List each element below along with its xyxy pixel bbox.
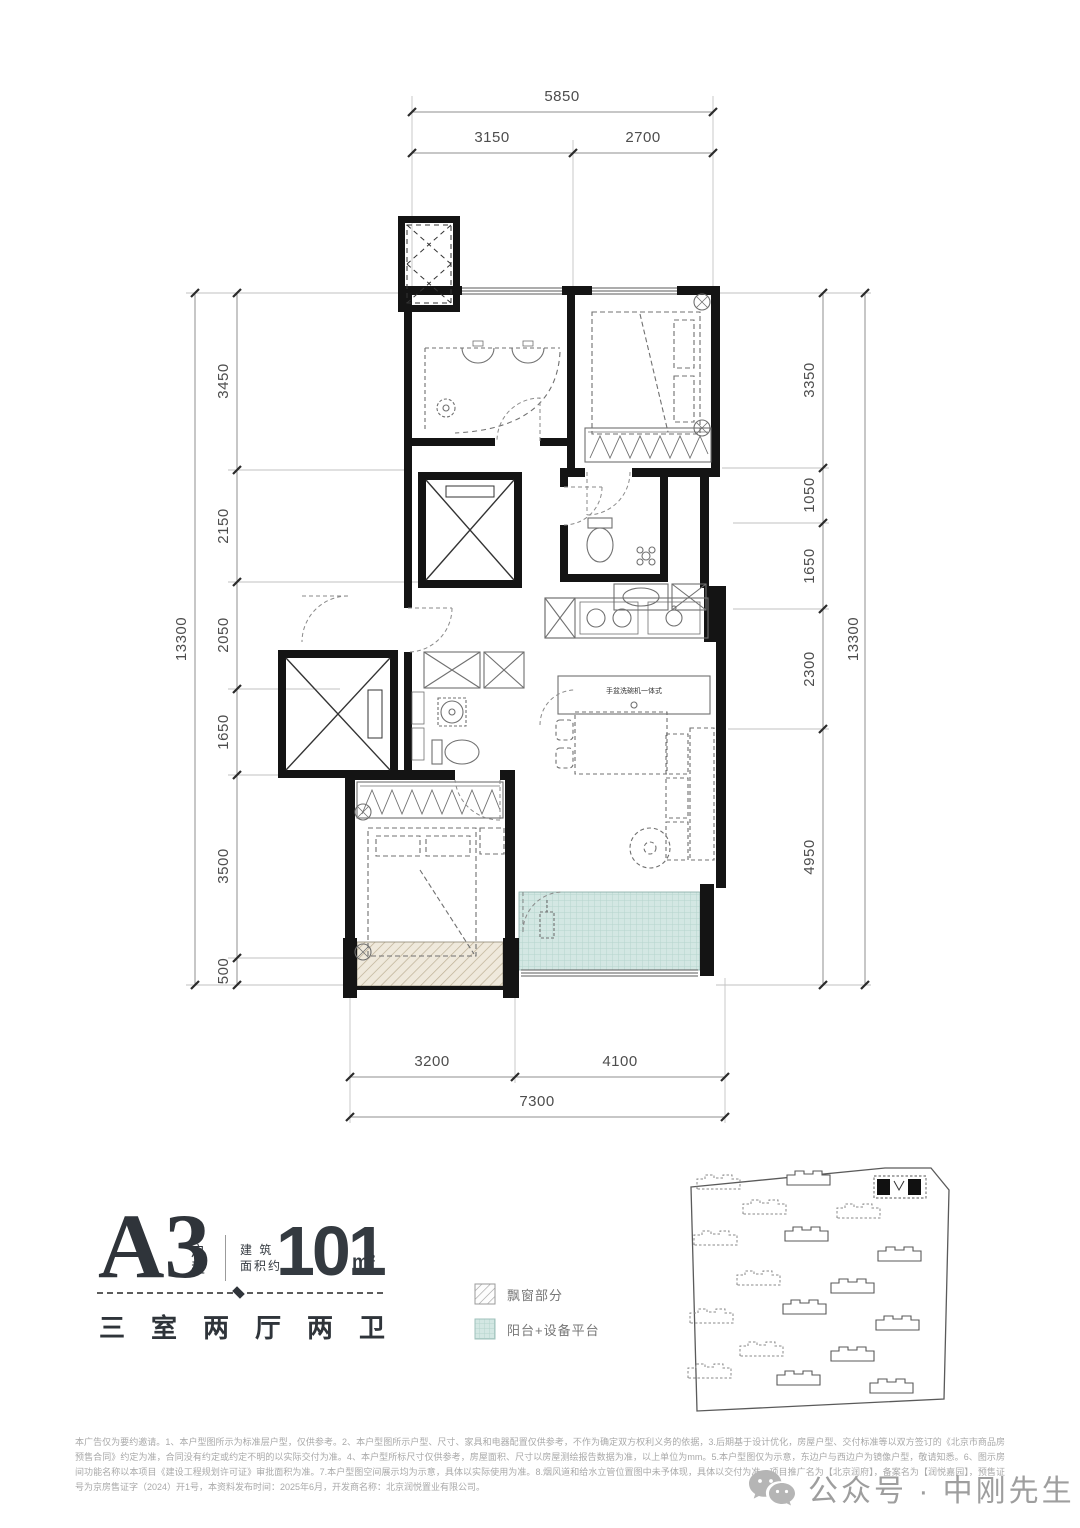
wardrobe-master — [585, 428, 711, 462]
balcony-area — [519, 892, 700, 970]
title-divider — [225, 1235, 226, 1281]
dim-bottom-seg-1: 3200 — [395, 1053, 469, 1071]
dim-top-total: 5850 — [525, 88, 599, 106]
kitchen-island-label: 手盆洗碗机一体式 — [589, 686, 679, 696]
balcony-swatch — [474, 1318, 496, 1340]
kitchen-fixtures — [545, 598, 710, 714]
unit-code-suffix: 户型 — [190, 1243, 206, 1277]
dim-bottom-seg-2: 4100 — [583, 1053, 657, 1071]
legend-balcony-label: 阳台+设备平台 — [507, 1320, 600, 1339]
legend-bay-window-label: 飘窗部分 — [507, 1285, 563, 1304]
dim-top-seg-1: 3150 — [455, 129, 529, 147]
dim-right-seg-1: 3350 — [801, 343, 819, 417]
area-unit: m² — [352, 1252, 375, 1274]
dim-right-seg-4: 2300 — [801, 632, 819, 706]
sofa-set — [630, 728, 714, 868]
dim-left-seg-3: 2050 — [215, 598, 233, 672]
dim-left-seg-1: 3450 — [215, 344, 233, 418]
dim-left-seg-2: 2150 — [215, 489, 233, 563]
dim-left-total: 13300 — [173, 602, 191, 676]
legend-item-bay-window: 飘窗部分 — [474, 1283, 563, 1305]
walls — [278, 216, 726, 998]
area-value: 101 — [276, 1216, 384, 1286]
bay-window-area — [357, 942, 503, 986]
dim-bottom-total: 7300 — [500, 1093, 574, 1111]
dim-right-seg-3: 1650 — [801, 529, 819, 603]
dim-left-seg-5: 3500 — [215, 829, 233, 903]
dim-right-seg-2: 1050 — [801, 458, 819, 532]
wardrobe-second — [357, 782, 503, 818]
floorplan-flyer: 5850 3150 2700 3200 4100 7300 13300 3450… — [0, 0, 1080, 1528]
dining-set — [556, 712, 667, 774]
watermark: 公众号 · 中刚先生 — [748, 1466, 1075, 1510]
site-plan — [688, 1168, 949, 1411]
wechat-icon — [748, 1468, 796, 1508]
dim-left-seg-4: 1650 — [215, 695, 233, 769]
bed-master — [592, 312, 700, 434]
dim-top-seg-2: 2700 — [606, 129, 680, 147]
bay-window-swatch — [474, 1283, 496, 1305]
dim-right-total: 13300 — [845, 602, 863, 676]
bed-second — [368, 828, 504, 956]
elevator-shafts — [286, 480, 514, 770]
legend-item-balcony: 阳台+设备平台 — [474, 1318, 600, 1340]
dim-left-seg-6: 500 — [215, 934, 233, 1008]
dim-right-seg-5: 4950 — [801, 820, 819, 894]
small-bath-fixtures — [587, 518, 706, 610]
watermark-text: 公众号 · 中刚先生 — [808, 1466, 1075, 1510]
rooms-summary: 三室两厅两卫 — [99, 1308, 411, 1345]
second-bath-fixtures — [412, 652, 524, 764]
